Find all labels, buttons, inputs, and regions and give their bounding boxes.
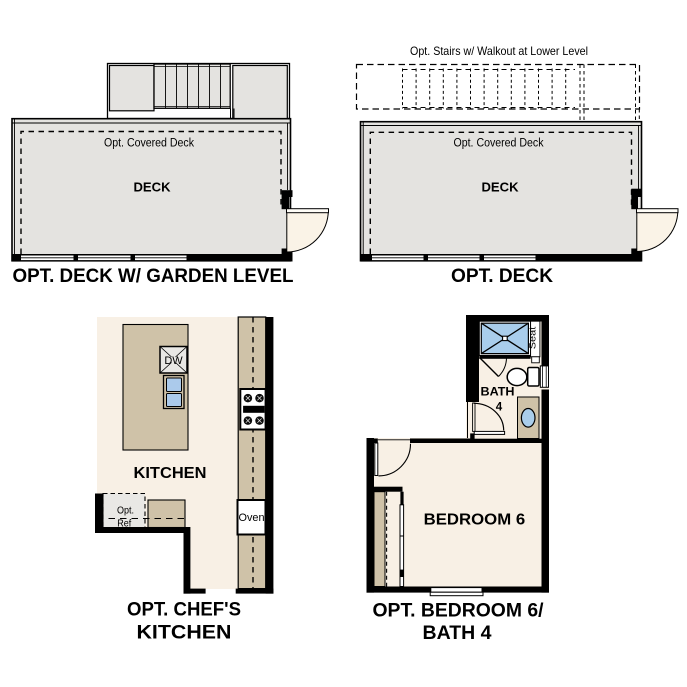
svg-text:OPT. CHEF'S: OPT. CHEF'S (127, 598, 241, 620)
svg-text:BATH 4: BATH 4 (423, 622, 492, 644)
svg-text:4: 4 (496, 400, 503, 413)
svg-text:KITCHEN: KITCHEN (137, 621, 232, 643)
svg-text:Oven: Oven (239, 512, 265, 524)
svg-text:OPT. DECK: OPT. DECK (451, 265, 553, 287)
svg-text:Opt. Covered Deck: Opt. Covered Deck (454, 135, 545, 149)
svg-text:Opt.: Opt. (117, 505, 134, 517)
svg-text:Opt. Covered Deck: Opt. Covered Deck (104, 135, 195, 149)
svg-text:BEDROOM 6: BEDROOM 6 (424, 511, 526, 528)
svg-text:KITCHEN: KITCHEN (134, 465, 207, 482)
svg-text:DECK: DECK (134, 181, 171, 195)
svg-text:DW: DW (164, 355, 183, 367)
svg-text:OPT. BEDROOM 6/: OPT. BEDROOM 6/ (373, 600, 545, 622)
svg-text:Opt. Stairs w/ Walkout at Lowe: Opt. Stairs w/ Walkout at Lower Level (410, 44, 588, 58)
svg-text:Seat: Seat (528, 326, 539, 349)
svg-text:DECK: DECK (482, 181, 519, 195)
svg-text:BATH: BATH (481, 385, 515, 398)
svg-text:OPT. DECK W/ GARDEN LEVEL: OPT. DECK W/ GARDEN LEVEL (13, 265, 294, 287)
